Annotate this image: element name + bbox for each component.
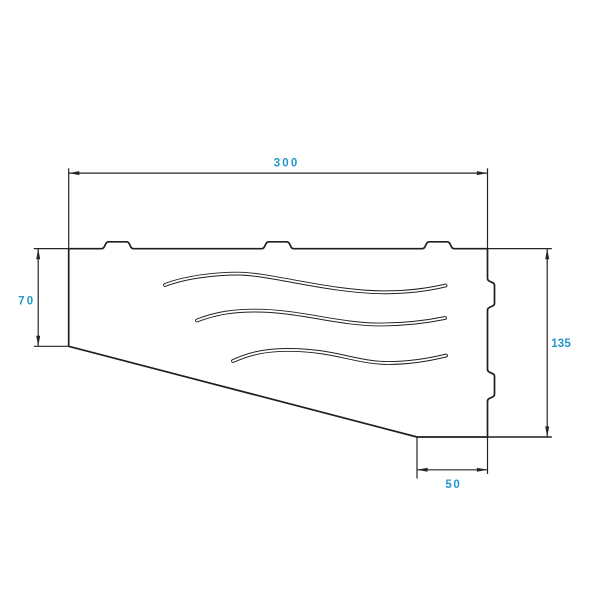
svg-text:70: 70 <box>18 296 35 308</box>
svg-text:50: 50 <box>445 479 461 491</box>
svg-text:300: 300 <box>274 157 300 169</box>
svg-text:135: 135 <box>551 338 571 350</box>
